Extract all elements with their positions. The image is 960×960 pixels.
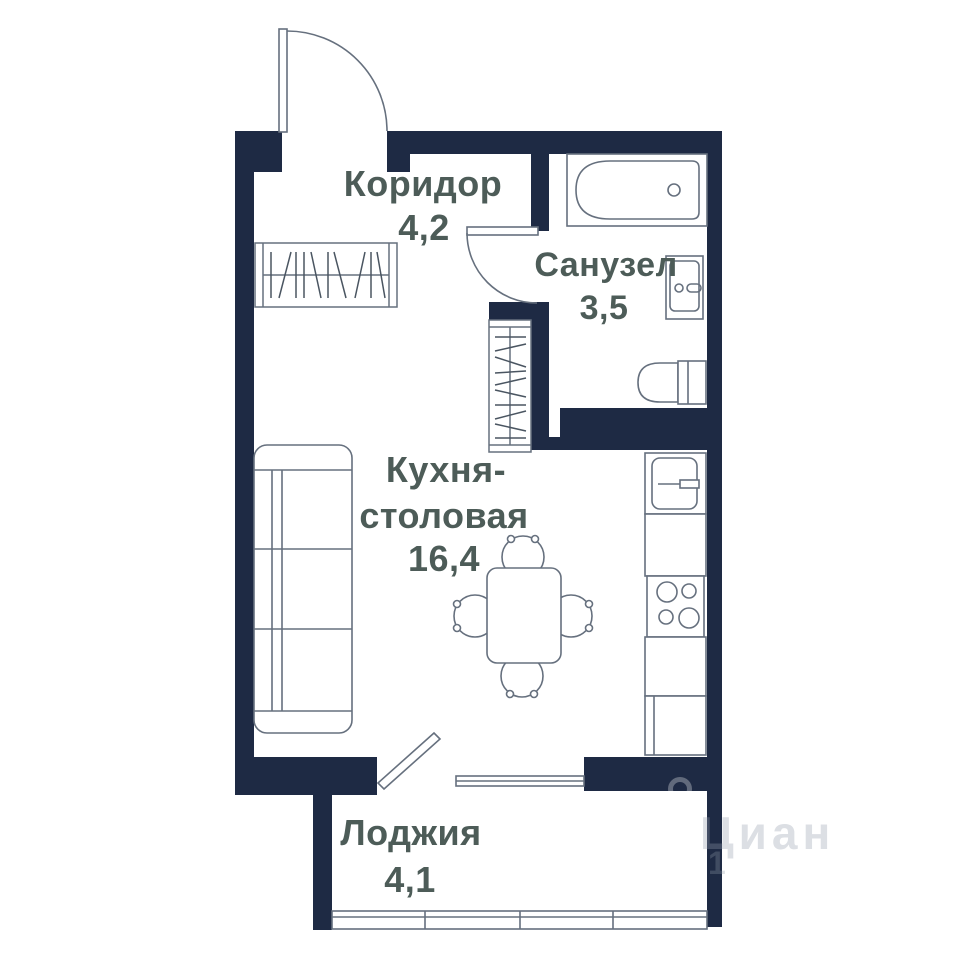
base-cabinet <box>645 696 706 755</box>
kitchen-window <box>456 776 584 786</box>
sofa <box>254 445 352 733</box>
counter-section-1 <box>645 514 706 576</box>
toilet <box>638 361 706 404</box>
bathroom-door-swing-arc <box>467 233 537 303</box>
bathtub <box>567 154 707 226</box>
balcony-door-leaf <box>378 733 440 789</box>
bathroom-name: Санузел <box>534 248 677 282</box>
corridor-area: 4,2 <box>398 210 450 246</box>
entrance-door <box>279 29 387 132</box>
hall-wardrobe <box>489 320 531 452</box>
corridor-name: Коридор <box>344 166 502 202</box>
bathroom-area: 3,5 <box>580 291 629 325</box>
corridor-wardrobe <box>255 243 397 307</box>
kitchen-faucet-icon <box>680 480 699 488</box>
watermark-extra: 1 <box>708 847 726 879</box>
stove <box>647 576 704 637</box>
bathroom-door <box>467 227 538 303</box>
bathroom-door-leaf <box>467 227 538 235</box>
loggia-name: Лоджия <box>340 815 481 851</box>
loggia-glazing <box>332 911 707 929</box>
dining-table <box>487 568 561 663</box>
counter-section-2 <box>645 637 706 696</box>
kitchen-name-line2: столовая <box>359 498 528 534</box>
entrance-door-leaf <box>279 29 287 132</box>
entrance-door-swing-arc <box>287 31 387 131</box>
kitchen-counter <box>645 453 706 755</box>
floor-plan: Коридор 4,2 Санузел 3,5 Кухня- столовая … <box>0 0 960 960</box>
kitchen-area: 16,4 <box>408 541 480 577</box>
loggia-area: 4,1 <box>384 862 436 898</box>
kitchen-name-line1: Кухня- <box>386 452 506 488</box>
watermark-pin-icon <box>668 777 692 801</box>
